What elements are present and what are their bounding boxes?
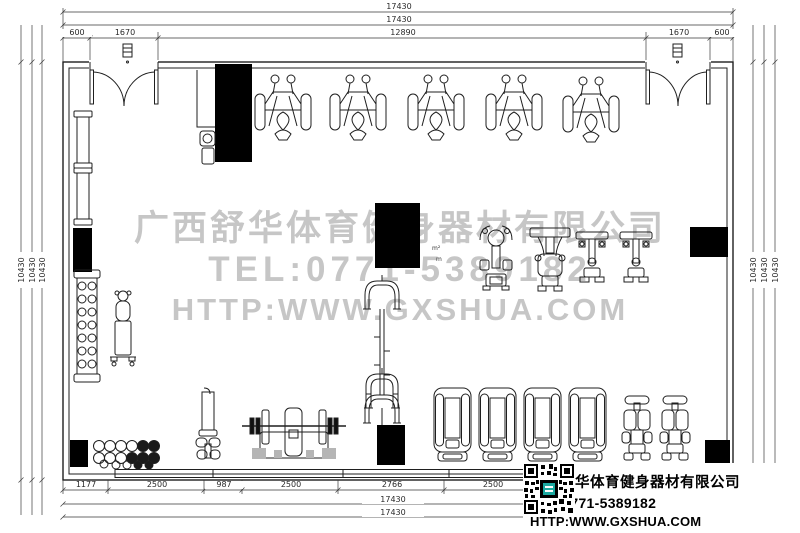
dim-left-1: 10430 — [18, 252, 26, 288]
dim-bottom-seg-6: 2500 — [474, 481, 512, 489]
dim-left-3: 10430 — [39, 252, 47, 288]
dim-bottom-seg-3: 987 — [205, 481, 243, 489]
company-info-box: 广西舒华体育健身器材有限公司 TEL:0771-5389182 HTTP:WWW… — [523, 463, 800, 533]
dim-top-seg-2: 1670 — [104, 29, 146, 37]
dim-top-seg-5: 600 — [707, 29, 737, 37]
dim-bottom-total-outer: 17430 — [362, 509, 424, 517]
dimension-labels: 17430 17430 600 1670 12890 1670 600 1177… — [0, 0, 800, 533]
dim-bottom-seg-2: 2500 — [138, 481, 176, 489]
dim-top-seg-4: 1670 — [658, 29, 700, 37]
dim-right-1: 10430 — [750, 252, 758, 288]
dim-left-2: 10430 — [29, 252, 37, 288]
dim-bottom-seg-1: 1177 — [67, 481, 105, 489]
dim-right-3: 10430 — [772, 252, 780, 288]
area-note: m — [436, 257, 442, 263]
dim-top-total-inner: 17430 — [368, 16, 430, 24]
dim-bottom-seg-5: 2766 — [373, 481, 411, 489]
floor-plan-page: 广西舒华体育健身器材有限公司 TEL:0771-5389182 HTTP:WWW… — [0, 0, 800, 533]
dim-bottom-seg-4: 2500 — [272, 481, 310, 489]
dim-top-seg-1: 600 — [62, 29, 92, 37]
company-web: HTTP:WWW.GXSHUA.COM — [530, 514, 740, 529]
dim-bottom-total-inner: 17430 — [362, 496, 424, 504]
area-note-sup: m² — [432, 246, 440, 252]
dim-top-seg-3: 12890 — [372, 29, 434, 37]
qr-code-icon — [523, 463, 575, 515]
dim-right-2: 10430 — [761, 252, 769, 288]
dim-top-total-outer: 17430 — [368, 3, 430, 11]
